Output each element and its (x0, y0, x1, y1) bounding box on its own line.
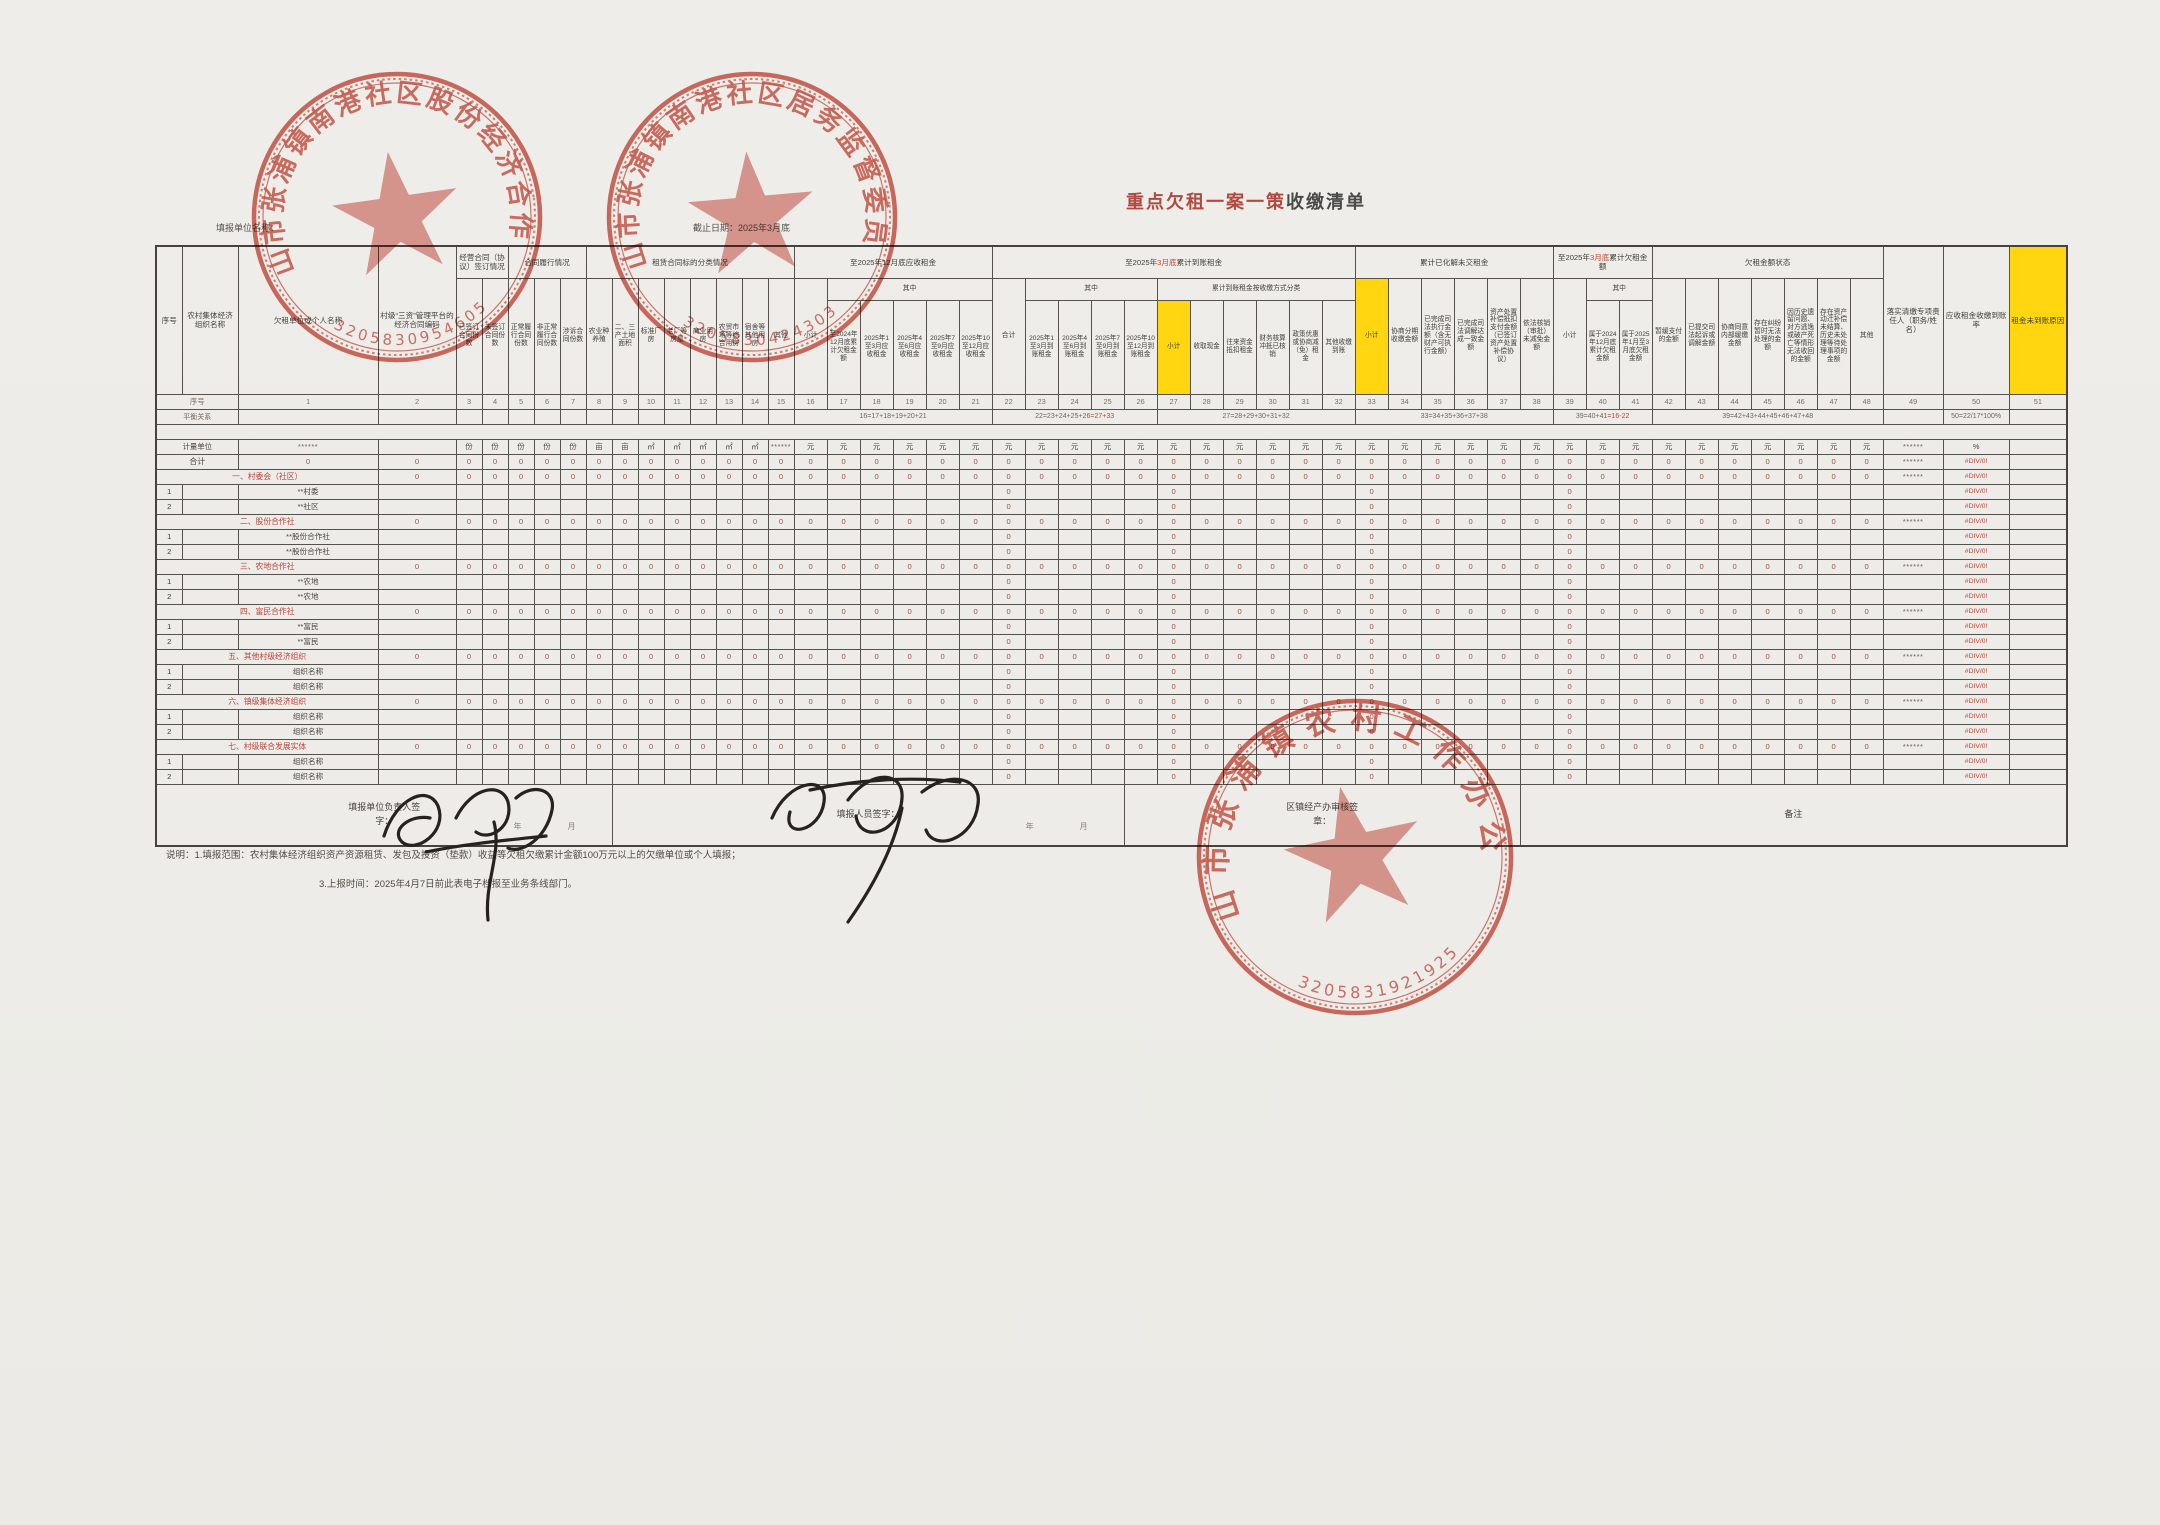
data-cell (716, 544, 742, 559)
data-cell: 0 (1718, 604, 1751, 619)
data-cell (1883, 529, 1943, 544)
data-cell: 0 (992, 469, 1025, 484)
data-cell: 0 (1058, 649, 1091, 664)
data-cell: 0 (1190, 604, 1223, 619)
data-cell (2009, 634, 2067, 649)
data-cell (508, 529, 534, 544)
data-cell (1817, 709, 1850, 724)
data-cell (456, 679, 482, 694)
data-cell: 0 (1289, 514, 1322, 529)
serial-cell: 7 (560, 394, 586, 409)
data-cell (860, 619, 893, 634)
column-header: 2025年7至9月应收租金 (926, 300, 959, 394)
data-cell (860, 709, 893, 724)
data-cell (1586, 754, 1619, 769)
data-cell (2009, 709, 2067, 724)
data-cell: 0 (742, 469, 768, 484)
data-cell: 0 (860, 514, 893, 529)
data-cell (1388, 619, 1421, 634)
data-cell: 0 (1751, 454, 1784, 469)
row-number: 1 (156, 754, 182, 769)
data-cell (1190, 484, 1223, 499)
data-cell: 0 (1025, 694, 1058, 709)
data-cell (860, 544, 893, 559)
data-cell (893, 724, 926, 739)
data-cell (664, 634, 690, 649)
data-cell (182, 679, 238, 694)
data-cell: 0 (612, 649, 638, 664)
data-cell: 0 (638, 694, 664, 709)
data-cell (534, 679, 560, 694)
detail-row: 1**富民0000#DIV/0! (156, 619, 2067, 634)
data-cell (1091, 769, 1124, 784)
data-cell (926, 589, 959, 604)
section-label: 三、农地合作社 (156, 559, 378, 574)
balance-cell (1883, 409, 1943, 424)
data-cell (1025, 619, 1058, 634)
data-cell: 0 (638, 469, 664, 484)
data-cell (664, 679, 690, 694)
data-cell (794, 664, 827, 679)
column-header: 已提交司法起诉或调解金额 (1685, 278, 1718, 394)
data-cell: 0 (1058, 604, 1091, 619)
data-cell: 0 (1157, 589, 1190, 604)
data-cell (534, 499, 560, 514)
data-cell (1223, 619, 1256, 634)
data-cell (1883, 544, 1943, 559)
data-cell (456, 529, 482, 544)
serial-cell: 15 (768, 394, 794, 409)
data-cell (1586, 769, 1619, 784)
data-cell: 0 (456, 739, 482, 754)
data-cell (1256, 574, 1289, 589)
data-cell (1883, 574, 1943, 589)
data-cell: 0 (827, 514, 860, 529)
data-cell: 0 (992, 724, 1025, 739)
column-header: 存在纠纷暂时无法处理的金额 (1751, 278, 1784, 394)
data-cell (1652, 709, 1685, 724)
data-cell (2009, 739, 2067, 754)
row-number: 2 (156, 544, 182, 559)
serial-cell: 20 (926, 394, 959, 409)
data-cell: 0 (1091, 694, 1124, 709)
data-cell: 0 (992, 559, 1025, 574)
data-cell (2009, 649, 2067, 664)
unit-cell: 元 (860, 439, 893, 454)
data-cell (1190, 499, 1223, 514)
data-cell: 0 (456, 559, 482, 574)
data-cell (893, 499, 926, 514)
data-cell: #DIV/0! (1943, 499, 2009, 514)
data-cell: 0 (1289, 454, 1322, 469)
data-cell (586, 619, 612, 634)
data-cell: ****** (1883, 454, 1943, 469)
data-cell: 0 (794, 469, 827, 484)
data-cell (742, 529, 768, 544)
data-cell: 0 (768, 649, 794, 664)
balance-cell: 16=17+18+19+20+21 (794, 409, 992, 424)
data-cell: 0 (1355, 634, 1388, 649)
stamp-seal-graphic: 昆山市张浦镇农村工作办公室 3205831921925 (1153, 655, 1556, 1058)
detail-row: 2**农地0000#DIV/0! (156, 589, 2067, 604)
data-cell (1685, 679, 1718, 694)
data-cell (1322, 589, 1355, 604)
serial-cell: 48 (1850, 394, 1883, 409)
column-header: 往来资金抵扣租金 (1223, 300, 1256, 394)
data-cell (1025, 664, 1058, 679)
data-cell: 0 (1289, 559, 1322, 574)
data-cell (1652, 754, 1685, 769)
data-cell (586, 574, 612, 589)
data-cell (1058, 769, 1091, 784)
data-cell (1223, 634, 1256, 649)
data-cell (1718, 634, 1751, 649)
data-cell (1619, 589, 1652, 604)
data-cell (1124, 769, 1157, 784)
serial-cell: 42 (1652, 394, 1685, 409)
serial-cell: 40 (1586, 394, 1619, 409)
unit-cell: 元 (1289, 439, 1322, 454)
data-cell: 0 (1817, 739, 1850, 754)
official-stamp: 昆山市张浦镇南港社区居务监督委员会 3205830424303 (582, 47, 922, 387)
data-cell (1784, 589, 1817, 604)
data-cell (586, 544, 612, 559)
data-cell (1883, 499, 1943, 514)
data-cell: 0 (560, 694, 586, 709)
data-cell: 0 (893, 454, 926, 469)
column-header: 2025年7至9月到账租金 (1091, 300, 1124, 394)
data-cell: 0 (1322, 649, 1355, 664)
data-cell (1520, 754, 1553, 769)
data-cell: 0 (926, 514, 959, 529)
data-cell (182, 484, 238, 499)
balance-cell (664, 409, 690, 424)
serial-cell: 23 (1025, 394, 1058, 409)
data-cell (560, 589, 586, 604)
data-cell: 0 (560, 604, 586, 619)
data-cell (794, 709, 827, 724)
data-cell (1652, 724, 1685, 739)
data-cell (1718, 484, 1751, 499)
data-cell (1289, 589, 1322, 604)
serial-cell: 30 (1256, 394, 1289, 409)
data-cell (1190, 544, 1223, 559)
data-cell: 0 (612, 559, 638, 574)
serial-cell: 21 (959, 394, 992, 409)
data-cell (1718, 769, 1751, 784)
detail-row: 2**富民0000#DIV/0! (156, 634, 2067, 649)
data-cell (1454, 499, 1487, 514)
data-cell (664, 499, 690, 514)
data-cell (1784, 754, 1817, 769)
entity-name: **村委 (238, 484, 378, 499)
data-cell: 0 (664, 649, 690, 664)
data-cell (586, 664, 612, 679)
data-cell (1058, 754, 1091, 769)
data-cell (690, 769, 716, 784)
data-cell: 0 (560, 454, 586, 469)
data-cell: 0 (768, 694, 794, 709)
data-cell (1850, 664, 1883, 679)
data-cell: 0 (1454, 514, 1487, 529)
data-cell (1487, 544, 1520, 559)
column-header: 已完成司法执行金额（含无财产可执行金额） (1421, 278, 1454, 394)
data-cell (1421, 529, 1454, 544)
data-cell (2009, 724, 2067, 739)
data-cell: 0 (959, 649, 992, 664)
data-cell (2009, 484, 2067, 499)
data-cell: 0 (378, 649, 456, 664)
data-cell (2009, 754, 2067, 769)
data-cell: 0 (1157, 574, 1190, 589)
data-cell: 0 (534, 469, 560, 484)
page-title-red-part: 重点欠租一案一策 (1126, 192, 1286, 212)
data-cell: 0 (860, 694, 893, 709)
data-cell (508, 499, 534, 514)
data-cell (827, 544, 860, 559)
data-cell (1289, 544, 1322, 559)
unit-cell: 元 (1553, 439, 1586, 454)
detail-row: 2**社区0000#DIV/0! (156, 499, 2067, 514)
data-cell: 0 (1718, 559, 1751, 574)
data-cell (827, 529, 860, 544)
data-cell (1025, 589, 1058, 604)
column-header: 应收租金收缴到账率 (1943, 246, 2009, 394)
data-cell (664, 664, 690, 679)
data-cell (182, 499, 238, 514)
data-cell (1784, 634, 1817, 649)
data-cell: 0 (992, 589, 1025, 604)
data-cell: 0 (1685, 649, 1718, 664)
data-cell (534, 544, 560, 559)
data-cell (1520, 634, 1553, 649)
data-cell: 0 (482, 604, 508, 619)
data-cell (690, 724, 716, 739)
data-cell: 0 (742, 559, 768, 574)
data-cell (638, 499, 664, 514)
data-cell (716, 589, 742, 604)
serial-cell: 2 (378, 394, 456, 409)
data-cell (1817, 484, 1850, 499)
data-cell (1817, 589, 1850, 604)
data-cell: 0 (1190, 649, 1223, 664)
data-cell: 0 (1850, 514, 1883, 529)
data-cell (1124, 529, 1157, 544)
data-cell (690, 634, 716, 649)
data-cell: 0 (586, 454, 612, 469)
data-cell: 0 (1487, 469, 1520, 484)
data-cell (612, 634, 638, 649)
data-cell: 0 (586, 694, 612, 709)
row-number: 2 (156, 724, 182, 739)
data-cell: 0 (1223, 514, 1256, 529)
data-cell (1124, 679, 1157, 694)
data-cell: 0 (1685, 694, 1718, 709)
data-cell (1223, 529, 1256, 544)
data-cell (182, 544, 238, 559)
data-cell: 0 (1553, 739, 1586, 754)
data-cell: 0 (1685, 514, 1718, 529)
data-cell: 0 (378, 739, 456, 754)
data-cell: 0 (1685, 739, 1718, 754)
data-cell (690, 544, 716, 559)
data-cell: 0 (1124, 454, 1157, 469)
detail-row: 1**村委0000#DIV/0! (156, 484, 2067, 499)
data-cell (182, 619, 238, 634)
data-cell: 0 (768, 514, 794, 529)
data-cell (716, 499, 742, 514)
data-cell (456, 544, 482, 559)
data-cell: 0 (1553, 619, 1586, 634)
data-cell (456, 634, 482, 649)
data-cell: 0 (378, 559, 456, 574)
data-cell: #DIV/0! (1943, 634, 2009, 649)
page-title: 重点欠租一案一策收缴清单 (1126, 188, 1366, 214)
data-cell (378, 574, 456, 589)
data-cell (768, 634, 794, 649)
data-cell: 0 (1355, 589, 1388, 604)
section-label: 七、村级联合发展实体 (156, 739, 378, 754)
data-cell: 0 (1553, 724, 1586, 739)
data-cell (1850, 619, 1883, 634)
data-cell: 0 (612, 454, 638, 469)
entity-name: 组织名称 (238, 679, 378, 694)
section-row: 五、其他村级经济组织000000000000000000000000000000… (156, 649, 2067, 664)
data-cell: 0 (1289, 649, 1322, 664)
data-cell (860, 724, 893, 739)
data-cell (508, 634, 534, 649)
entity-name: 组织名称 (238, 754, 378, 769)
data-cell (1718, 724, 1751, 739)
data-cell: 0 (1751, 739, 1784, 754)
data-cell (1718, 709, 1751, 724)
data-cell: 0 (1157, 679, 1190, 694)
column-header: 租金未到账原因 (2009, 246, 2067, 394)
data-cell: 0 (534, 514, 560, 529)
data-cell: 0 (1223, 454, 1256, 469)
data-cell: 0 (690, 469, 716, 484)
data-cell (860, 484, 893, 499)
data-cell (1751, 484, 1784, 499)
data-cell (1718, 664, 1751, 679)
data-cell (1718, 499, 1751, 514)
unit-cell: 元 (893, 439, 926, 454)
data-cell (893, 544, 926, 559)
data-cell: 0 (664, 604, 690, 619)
data-cell (1586, 679, 1619, 694)
data-cell (860, 634, 893, 649)
data-cell: 0 (1784, 454, 1817, 469)
data-cell: 0 (794, 454, 827, 469)
data-cell: 0 (690, 604, 716, 619)
data-cell (742, 574, 768, 589)
column-header: 累计已化解未交租金 (1355, 246, 1553, 278)
data-cell: 0 (1454, 454, 1487, 469)
data-cell: 0 (612, 469, 638, 484)
data-cell: 0 (959, 559, 992, 574)
column-header: 小计 (1355, 278, 1388, 394)
data-cell: 0 (612, 694, 638, 709)
data-cell (959, 484, 992, 499)
data-cell: 0 (1157, 499, 1190, 514)
data-cell (2009, 769, 2067, 784)
row-number: 1 (156, 484, 182, 499)
data-cell (1025, 484, 1058, 499)
data-cell: 0 (1355, 499, 1388, 514)
data-cell (1520, 619, 1553, 634)
entity-name: **股份合作社 (238, 544, 378, 559)
data-cell: 0 (1520, 604, 1553, 619)
data-cell (612, 709, 638, 724)
data-cell (1850, 484, 1883, 499)
data-cell: 0 (482, 514, 508, 529)
row-number: 2 (156, 679, 182, 694)
data-cell (893, 574, 926, 589)
data-cell (182, 589, 238, 604)
data-cell (1619, 664, 1652, 679)
data-cell: 0 (638, 514, 664, 529)
serial-cell: 11 (664, 394, 690, 409)
data-cell: 0 (534, 739, 560, 754)
data-cell (827, 589, 860, 604)
data-cell (1256, 529, 1289, 544)
data-cell (1718, 679, 1751, 694)
data-cell (926, 634, 959, 649)
data-cell (586, 769, 612, 784)
data-cell (690, 709, 716, 724)
data-cell (1058, 544, 1091, 559)
unit-cell: 元 (992, 439, 1025, 454)
data-cell: 0 (827, 469, 860, 484)
data-cell: 0 (1124, 649, 1157, 664)
data-cell (508, 544, 534, 559)
data-cell: #DIV/0! (1943, 739, 2009, 754)
data-cell: 0 (794, 559, 827, 574)
data-cell (1091, 679, 1124, 694)
data-cell: 0 (612, 604, 638, 619)
data-cell (534, 484, 560, 499)
data-cell: 0 (1619, 514, 1652, 529)
data-cell (1784, 544, 1817, 559)
data-cell: 0 (1520, 469, 1553, 484)
unit-cell: 元 (1091, 439, 1124, 454)
data-cell: #DIV/0! (1943, 694, 2009, 709)
data-cell: 0 (1091, 454, 1124, 469)
data-cell (638, 484, 664, 499)
serial-cell: 31 (1289, 394, 1322, 409)
data-cell (959, 544, 992, 559)
serial-cell: 1 (238, 394, 378, 409)
data-cell: #DIV/0! (1943, 589, 2009, 604)
data-cell (1817, 619, 1850, 634)
data-cell (1058, 634, 1091, 649)
data-cell: 0 (1751, 604, 1784, 619)
data-cell: 0 (638, 604, 664, 619)
data-cell (690, 679, 716, 694)
entity-name: 组织名称 (238, 664, 378, 679)
data-cell: 0 (992, 499, 1025, 514)
data-cell (1652, 679, 1685, 694)
data-cell (182, 529, 238, 544)
data-cell (638, 754, 664, 769)
data-cell (1817, 529, 1850, 544)
data-cell (1256, 679, 1289, 694)
unit-cell: 元 (1850, 439, 1883, 454)
balance-cell (534, 409, 560, 424)
data-cell: ****** (1883, 469, 1943, 484)
data-cell (926, 574, 959, 589)
data-cell (1883, 589, 1943, 604)
